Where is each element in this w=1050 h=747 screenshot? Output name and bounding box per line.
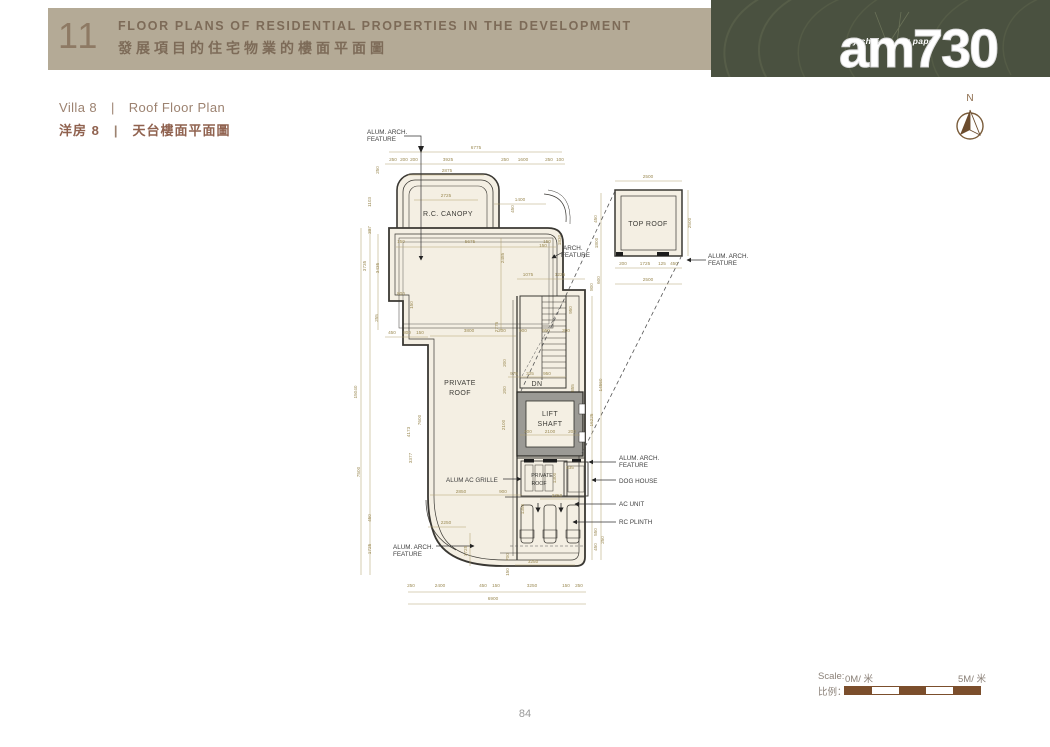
- lead-label: ALUM AC GRILLE: [446, 477, 498, 484]
- chapter-number: 11: [58, 18, 99, 54]
- lead-label: FEATURE: [619, 462, 648, 469]
- scale-label-zh: 比例：: [818, 684, 847, 698]
- scale-bar-graphic: [844, 686, 981, 695]
- dimension-text: 150: [543, 239, 551, 244]
- room-label: ROOF: [449, 390, 471, 397]
- dimension-text: 200: [400, 157, 408, 162]
- lead-label: ALUM. ARCH.: [367, 129, 407, 136]
- subtitle-zh: 洋房 8|天台樓面平面圖: [59, 120, 231, 139]
- dimension-text: 2725: [441, 193, 452, 198]
- dimension-text: 2850: [456, 489, 467, 494]
- dimension-text: 200: [410, 157, 418, 162]
- dimension-text: 150: [562, 583, 570, 588]
- dimension-text: 900: [499, 489, 507, 494]
- dimension-text: 250: [375, 166, 380, 174]
- dimension-text: 150: [416, 330, 424, 335]
- dimension-text: 250: [600, 536, 605, 544]
- villa-label: Villa 8: [59, 100, 97, 115]
- lead-label: FEATURE: [393, 551, 422, 558]
- scale-segment: [845, 687, 872, 694]
- scale-bar-row: 比例：: [818, 684, 1018, 696]
- dimension-text: 150: [409, 301, 414, 309]
- lead-label: FEATURE: [561, 252, 590, 259]
- scale-labels: Scale: 0M/ 米 5M/ 米: [818, 671, 1018, 684]
- dimension-text: 1600: [518, 157, 529, 162]
- dimension-text: 2485: [500, 252, 505, 263]
- dimension-text: 2875: [442, 168, 453, 173]
- lead-label: DOG HOUSE: [619, 478, 658, 485]
- dimension-text: 397: [367, 226, 372, 234]
- dimension-text: 250: [575, 583, 583, 588]
- lead-label: AC UNIT: [619, 501, 644, 508]
- dimension-text: 125: [658, 261, 666, 266]
- room-label: R.C. CANOPY: [423, 211, 473, 218]
- dimension-text: 950: [543, 371, 551, 376]
- dimension-text: 5675: [465, 239, 476, 244]
- dimension-text: 950: [542, 328, 550, 333]
- dimension-text: 2100: [501, 419, 506, 430]
- dimension-text: 450: [367, 514, 372, 522]
- header-band: 11 FLOOR PLANS OF RESIDENTIAL PROPERTIES…: [48, 8, 711, 70]
- dimension-text: 7600: [417, 414, 422, 425]
- scale-end: 5M/ 米: [958, 671, 986, 685]
- dimension-text: 1725: [463, 545, 468, 556]
- dimension-text: 150: [397, 239, 405, 244]
- dimension-text: 1300: [552, 472, 557, 483]
- dimension-text: 2250: [441, 520, 452, 525]
- dimension-text: 200: [502, 386, 507, 394]
- dimension-text: 600: [596, 276, 601, 284]
- dimension-text: 450: [670, 261, 678, 266]
- dimension-text: 2500: [643, 174, 654, 179]
- dimension-text: 450: [510, 205, 515, 213]
- dimension-text: 450: [479, 583, 487, 588]
- lead-label: FEATURE: [708, 260, 737, 267]
- dimension-text: 2400: [435, 583, 446, 588]
- dimension-text: 975: [510, 371, 518, 376]
- dimension-text: 3250: [527, 583, 538, 588]
- villa-label-zh: 洋房 8: [59, 123, 100, 138]
- scale-label-en: Scale:: [818, 671, 844, 682]
- dimension-text: 2500: [687, 217, 692, 228]
- dimension-text: 150: [505, 568, 510, 576]
- scale-segment: [926, 687, 953, 694]
- dimension-text: 200: [562, 328, 570, 333]
- dimension-text: 14560: [598, 378, 603, 391]
- dimension-text: 150: [492, 583, 500, 588]
- plan-subtitle: Villa 8|Roof Floor Plan 洋房 8|天台樓面平面圖: [59, 100, 231, 144]
- dimension-text: 2100: [545, 429, 556, 434]
- north-label: N: [945, 93, 995, 104]
- dimension-text: 200: [619, 261, 627, 266]
- dimension-text: 1400: [515, 197, 526, 202]
- brand-banner: my choice . my paper am730: [711, 0, 1050, 77]
- lead-label: FEATURE: [367, 136, 396, 143]
- rooms-label: ROOF: [532, 481, 547, 487]
- dimension-text: 700: [505, 553, 510, 561]
- dimension-text: 535: [566, 465, 574, 470]
- dimension-text: 2500: [643, 277, 654, 282]
- lead-label: ALUM. ARCH.: [393, 544, 433, 551]
- dimension-text: 250: [389, 157, 397, 162]
- dimension-text: 800: [589, 283, 594, 291]
- dimension-text: 3435: [375, 262, 380, 273]
- subtitle-en: Villa 8|Roof Floor Plan: [59, 100, 231, 115]
- dimension-text: 325: [526, 371, 534, 376]
- floor-plan: PRIVATEROOFR.C. CANOPYTOP ROOFLIFTSHAFTD…: [340, 108, 1020, 653]
- floor-label-zh: 天台樓面平面圖: [132, 123, 230, 138]
- dimension-text: 250: [501, 157, 509, 162]
- dimension-text: 800: [397, 291, 405, 296]
- dimension-text: 100: [556, 157, 564, 162]
- dimension-text: 450: [593, 215, 598, 223]
- scale-segment: [872, 687, 899, 694]
- dimension-text: 2350: [552, 493, 563, 498]
- dimension-text: 1075: [523, 272, 534, 277]
- dimension-text: 1103: [367, 197, 372, 207]
- scale-segment: [953, 687, 980, 694]
- dimension-text: 255: [374, 314, 379, 322]
- dimension-text: 3377: [408, 452, 413, 463]
- dimension-text: 16225: [589, 413, 594, 426]
- scale-segment: [899, 687, 926, 694]
- scale-start: 0M/ 米: [845, 671, 873, 685]
- lead-label: ALUM. ARCH.: [619, 455, 659, 462]
- dimension-text: 250: [545, 157, 553, 162]
- scale-bar: Scale: 0M/ 米 5M/ 米 比例：: [818, 671, 1018, 696]
- dimension-text: 200: [498, 328, 506, 333]
- dimension-text: 200: [502, 359, 507, 367]
- lead-label: ARCH.: [563, 245, 583, 252]
- dimension-text: 200: [568, 429, 576, 434]
- rooms-label: PRIVATE: [531, 473, 553, 479]
- room-label: LIFT: [542, 411, 558, 418]
- dimension-text: 4173: [406, 426, 411, 437]
- dimension-text: 855: [570, 384, 575, 392]
- dimension-text: 6775: [471, 145, 482, 150]
- room-label: DN: [532, 381, 543, 388]
- dimension-text: 450: [593, 543, 598, 551]
- room-label: TOP ROOF: [628, 221, 668, 228]
- dimension-text: 1350: [520, 503, 525, 514]
- page-title: FLOOR PLANS OF RESIDENTIAL PROPERTIES IN…: [118, 19, 632, 33]
- lead-label: RC PLINTH: [619, 519, 653, 526]
- page-title-zh: 發展項目的住宅物業的樓面平面圖: [118, 38, 632, 58]
- dimension-text: 3800: [464, 328, 475, 333]
- dimension-text: 1725: [640, 261, 651, 266]
- dimension-text: 3250: [528, 559, 539, 564]
- brand-logo: am730: [839, 22, 997, 76]
- dimension-text: 6900: [488, 596, 499, 601]
- dimension-text: 1225: [555, 272, 566, 277]
- divider: |: [111, 100, 115, 115]
- dimension-text: 15040: [353, 385, 358, 398]
- room-label: PRIVATE: [444, 380, 476, 387]
- dimension-text: 450: [388, 330, 396, 335]
- dimension-text: 1725: [367, 543, 372, 554]
- dimension-text: 1830: [557, 234, 562, 245]
- dimension-text: 7500: [356, 466, 361, 477]
- room-label: SHAFT: [538, 421, 563, 428]
- dimension-text: 800: [403, 330, 411, 335]
- dimension-text: 900: [519, 328, 527, 333]
- dimension-text: 3925: [443, 157, 454, 162]
- lead-label: ALUM. ARCH.: [708, 253, 748, 260]
- page-number: 84: [0, 708, 1050, 720]
- dimension-text: 200: [524, 429, 532, 434]
- dimension-text: 250: [407, 583, 415, 588]
- dimension-text: 550: [593, 528, 598, 536]
- floor-label: Roof Floor Plan: [129, 100, 225, 115]
- dimension-text: 1800: [594, 237, 599, 248]
- dimension-text: 3735: [362, 260, 367, 271]
- header-titles: FLOOR PLANS OF RESIDENTIAL PROPERTIES IN…: [118, 19, 632, 58]
- divider-zh: |: [114, 123, 119, 138]
- dimension-text: 950: [568, 306, 573, 314]
